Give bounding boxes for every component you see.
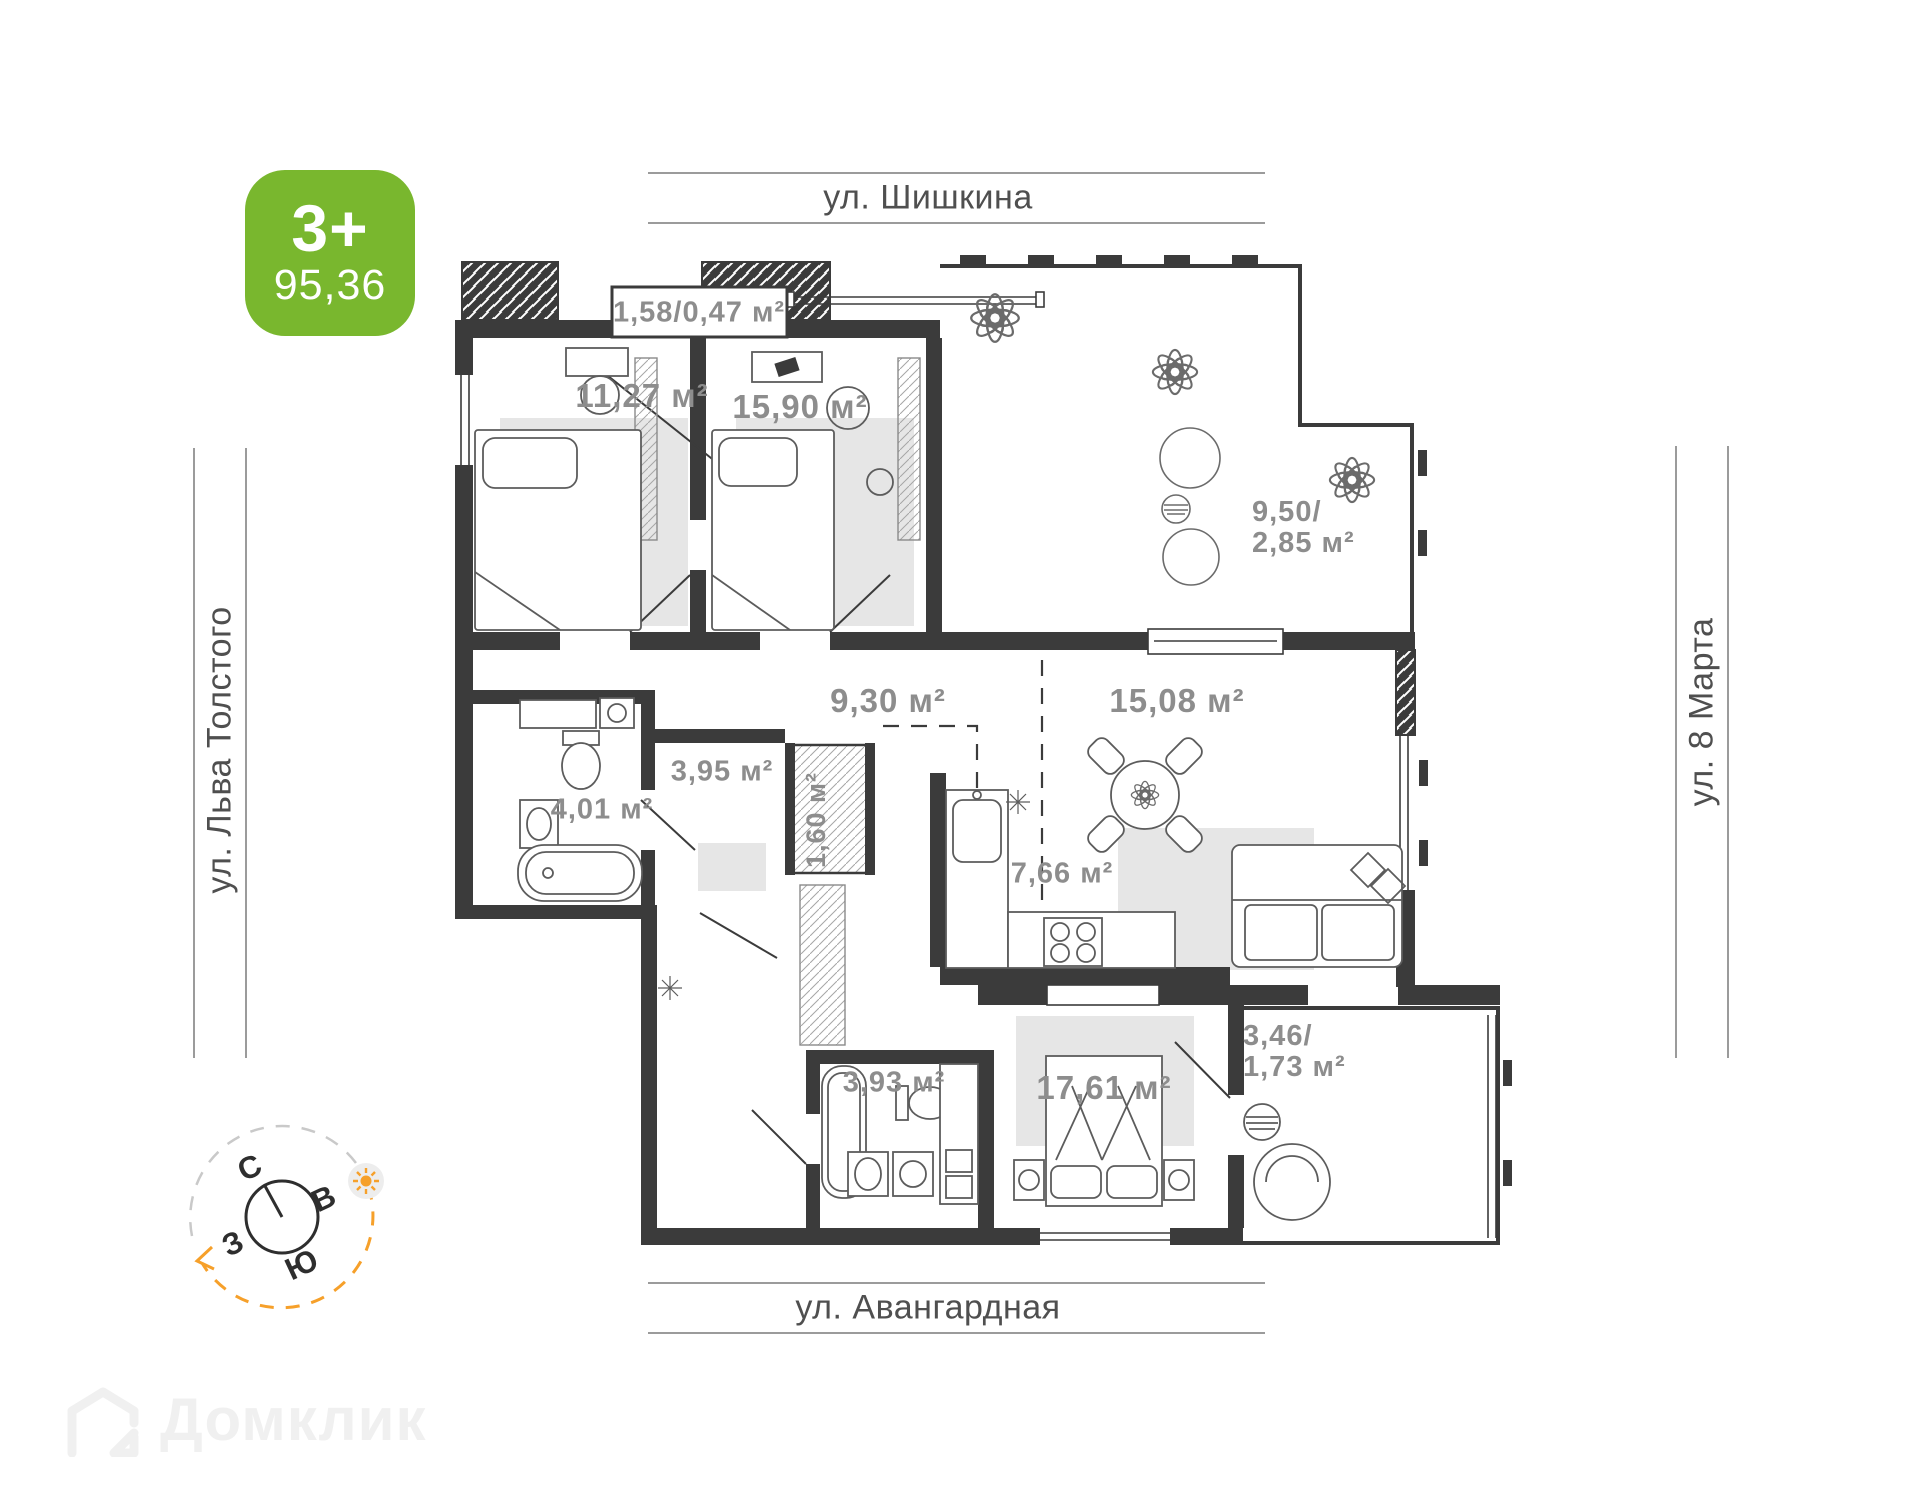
room-label-bathroom-2: 3,93 м² bbox=[843, 1068, 946, 1099]
floor-plan-page: 3+ 95,36 ул. Шишкина ул. Авангардная ул.… bbox=[0, 0, 1920, 1507]
sun-icon bbox=[348, 1163, 384, 1199]
room-label-bedroom-3: 17,61 м² bbox=[1036, 1071, 1171, 1105]
compass-north: С bbox=[232, 1147, 267, 1188]
compass-arrow-icon bbox=[197, 1247, 214, 1269]
compass-west: З bbox=[216, 1224, 248, 1264]
brand-watermark: Домклик bbox=[62, 1381, 427, 1457]
room-label-balcony-bottom: 3,46/ 1,73 м² bbox=[1243, 1021, 1346, 1083]
room-label-bedroom-2: 15,90 м² bbox=[732, 390, 867, 424]
room-label-wardrobe: 1,60 м² bbox=[799, 772, 833, 868]
furniture-hall-asterisk bbox=[658, 976, 682, 1000]
room-label-kitchen: 7,66 м² bbox=[1011, 859, 1114, 890]
room-label-balcony-top: 1,58/0,47 м² bbox=[613, 298, 785, 329]
compass: С В З Ю bbox=[190, 1126, 384, 1308]
floor-plan-drawing: С В З Ю bbox=[0, 0, 1920, 1507]
room-label-hallway: 9,30 м² bbox=[830, 684, 946, 718]
domclick-house-icon bbox=[62, 1381, 144, 1457]
room-label-bedroom-1: 11,27 м² bbox=[575, 379, 708, 413]
furniture-balcony-bottom bbox=[1244, 1104, 1330, 1220]
watermark-brand-text: Домклик bbox=[160, 1385, 427, 1454]
room-label-bathroom-1: 4,01 м² bbox=[551, 795, 654, 826]
room-label-hall-2: 3,95 м² bbox=[671, 757, 774, 788]
room-label-terrace: 9,50/ 2,85 м² bbox=[1252, 497, 1355, 559]
room-label-living-room: 15,08 м² bbox=[1109, 684, 1244, 718]
